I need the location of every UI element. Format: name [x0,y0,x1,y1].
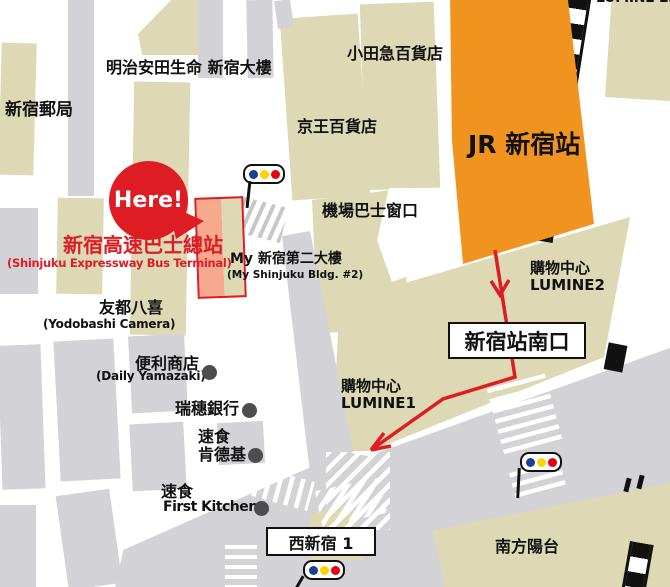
here-label: Here! [114,188,183,213]
nishi-shinjuku-label: 西新宿 1 [289,530,354,554]
signal-yellow-light [260,170,269,179]
south-exit-sign: 新宿站南口 [448,322,586,359]
signal-red-light [271,170,280,179]
map-canvas: LUMINE EST 新宿郵局 明治安田生命 新宿大樓 小田急百貨店 京王百貨店… [0,0,670,587]
signal-red-light [548,458,557,467]
signal-red-light [331,566,340,575]
signal-yellow-light [320,566,329,575]
south-exit-label: 新宿站南口 [465,326,570,356]
walking-route-arrow [0,0,670,587]
traffic-light [520,452,562,472]
here-bubble: Here! [109,161,188,240]
traffic-light [303,560,345,580]
poi-marker-daily-yamazaki [202,365,217,380]
poi-marker-mizuho [242,403,257,418]
nishi-shinjuku-sign: 西新宿 1 [266,527,376,556]
signal-yellow-light [537,458,546,467]
poi-marker-first-kitchen [254,501,269,516]
signal-blue-light [249,170,258,179]
signal-blue-light [526,458,535,467]
poi-marker-kfc [248,448,263,463]
signal-blue-light [309,566,318,575]
